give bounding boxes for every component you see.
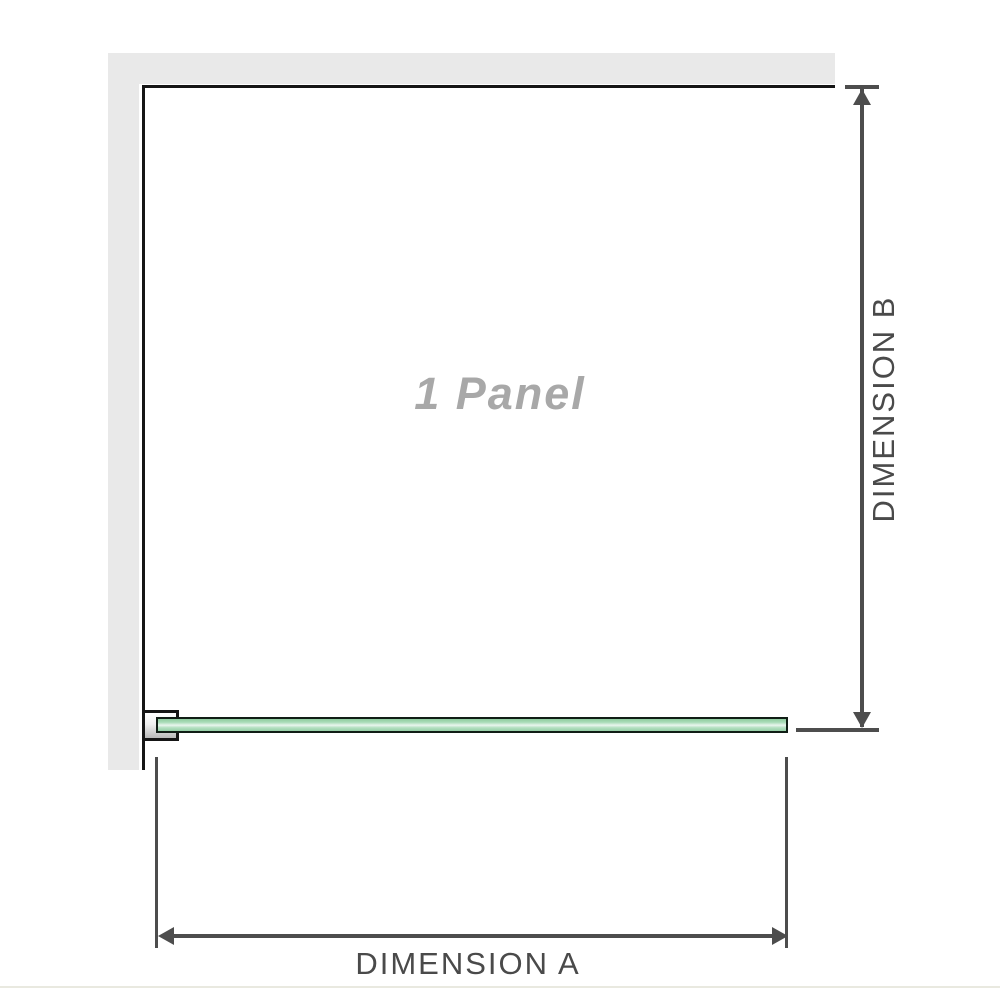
arrow-up-icon [853, 89, 871, 105]
dimension-b-label: DIMENSION B [864, 229, 904, 589]
image-bottom-edge-line [0, 986, 1000, 988]
arrow-down-icon [853, 712, 871, 728]
glass-panel [156, 717, 788, 733]
dimension-a-label: DIMENSION A [168, 946, 768, 982]
panel-area-left-border [142, 85, 145, 770]
panel-count-label: 1 Panel [300, 368, 700, 420]
shower-panel-diagram: 1 Panel DIMENSION B DIMENSION A [0, 0, 1000, 1000]
wall-top [108, 53, 835, 84]
panel-area-top-border [142, 85, 835, 88]
dimension-a-left-extension-line [155, 757, 158, 948]
dimension-b-bottom-tick [796, 728, 879, 732]
dimension-a-line [172, 934, 773, 938]
arrow-left-icon [158, 927, 174, 945]
wall-left [108, 53, 139, 770]
dimension-a-right-extension-line [785, 757, 788, 948]
arrow-right-icon [772, 927, 788, 945]
